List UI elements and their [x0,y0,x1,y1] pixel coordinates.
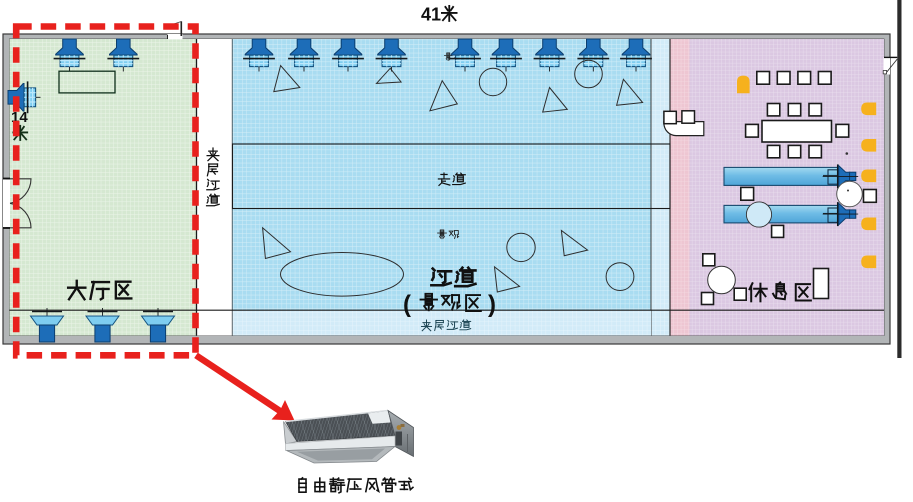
svg-text:): ) [488,291,496,318]
svg-text:41: 41 [421,5,441,25]
svg-text:(: ( [403,291,411,318]
